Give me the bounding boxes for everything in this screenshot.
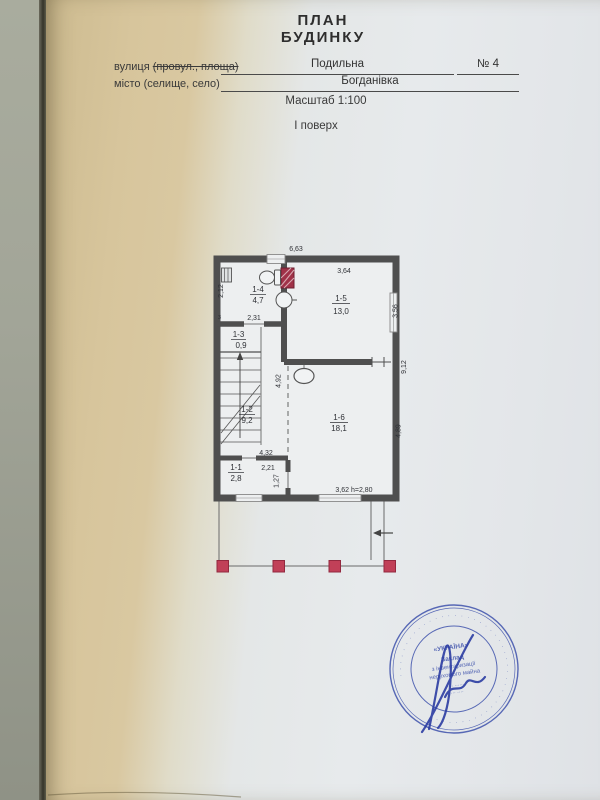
toilet-tank (275, 270, 281, 285)
street-label: вулиця (провул., площа) (114, 61, 239, 73)
vent-channel-box (222, 268, 232, 282)
dim-room2-width: 4,32 (259, 450, 273, 457)
dim-room4-width: 2,31 (247, 315, 261, 322)
corner-mark: з (218, 314, 221, 321)
room4-number: 1-4 (252, 285, 264, 294)
table-surface (0, 0, 40, 800)
room2-area: 9,2 (241, 416, 253, 425)
room2-number: 1-2 (241, 405, 253, 414)
document-page: ПЛАН БУДИНКУ вулиця (провул., площа) Под… (46, 0, 600, 800)
city-value-line: Богданівка (221, 75, 519, 92)
room5-area: 13,0 (333, 307, 349, 316)
dim-room6-depth: 4,89 (396, 424, 403, 438)
stove-boiler (294, 369, 314, 384)
room4-area: 4,7 (252, 296, 264, 305)
street-value-line: Подильна (221, 58, 454, 75)
room1-area: 2,8 (230, 474, 242, 483)
toilet-bowl (260, 271, 275, 284)
dim-room6-width-height: 3,62 h=2,80 (335, 487, 372, 494)
room3-number: 1-3 (233, 330, 245, 339)
title-line-2: БУДИНКУ (46, 29, 600, 46)
floor-label: І поверх (246, 120, 386, 132)
dim-right-side-depth: 9,12 (401, 360, 408, 374)
room5-number: 1-5 (335, 294, 347, 303)
photographed-document: ПЛАН БУДИНКУ вулиця (провул., площа) Под… (0, 0, 600, 800)
city-label: місто (селище, село) (114, 78, 220, 90)
document-title: ПЛАН БУДИНКУ (46, 12, 600, 46)
room6-number: 1-6 (333, 413, 345, 422)
title-line-1: ПЛАН (46, 12, 600, 29)
floor-plan-drawing: 1-4 4,7 1-5 13,0 1-3 0,9 1-2 9,2 1-6 18,… (184, 240, 424, 585)
room1-number: 1-1 (230, 463, 242, 472)
dim-room4-depth: 2,12 (218, 284, 225, 298)
room6-area: 18,1 (331, 424, 347, 433)
dim-room5-width: 3,64 (337, 268, 351, 275)
scale-label: Масштаб 1:100 (216, 95, 436, 107)
official-stamp: · · · · · · · · · · · · · · · · · · · · … (379, 597, 529, 742)
dim-stair-hall-depth: 4,92 (276, 374, 283, 388)
dim-vestibule-depth: 1,27 (274, 474, 281, 488)
dim-room5-depth: 3,56 (393, 304, 400, 318)
entrance-arrow-head (373, 530, 381, 537)
page-curl-edge (46, 788, 246, 800)
porch-outline (219, 502, 396, 567)
room3-area: 0,9 (235, 341, 247, 350)
dim-vestibule-width: 2,21 (261, 465, 275, 472)
street-label-prefix: вулиця (114, 61, 150, 73)
dim-overall-width: 6,63 (289, 246, 303, 253)
sink (276, 292, 292, 308)
house-number-line: № 4 (457, 58, 519, 75)
